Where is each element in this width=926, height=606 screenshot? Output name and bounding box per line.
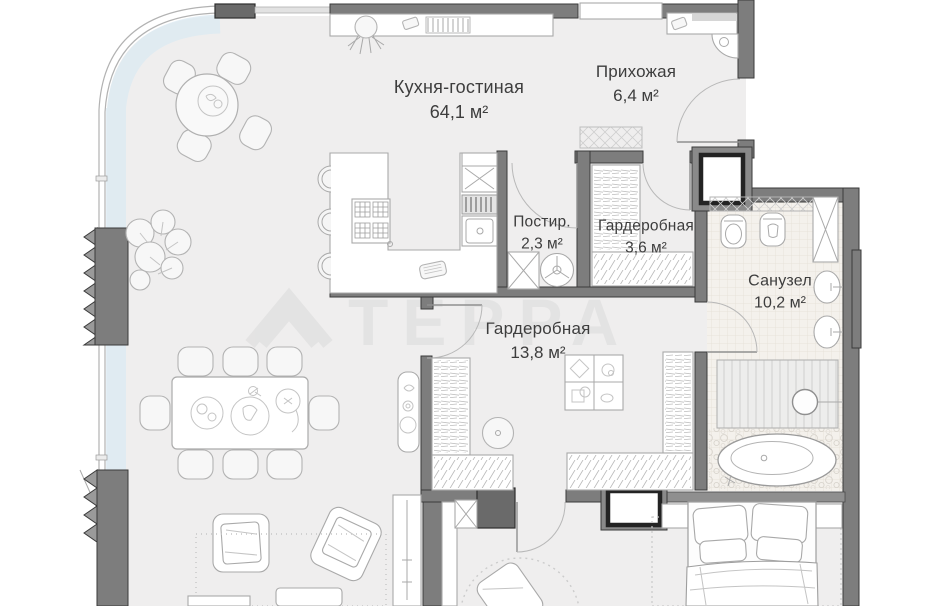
toilet-icon <box>721 215 746 248</box>
room-name: Постир. <box>513 211 571 233</box>
doormat <box>580 127 642 148</box>
nightstand <box>816 504 842 528</box>
room-label-bathroom: Санузел 10,2 м² <box>748 271 812 316</box>
washing-machine-icon <box>508 252 539 289</box>
room-area: 64,1 м² <box>394 100 524 125</box>
room-label-laundry: Постир. 2,3 м² <box>513 211 571 254</box>
facade-pier <box>84 470 128 606</box>
room-area: 2,3 м² <box>513 233 571 255</box>
room-name: Санузел <box>748 271 812 293</box>
bathtub-icon <box>718 434 836 486</box>
room-area: 13,8 м² <box>485 341 590 365</box>
nightstand <box>662 504 688 528</box>
sofa-partial <box>188 596 250 606</box>
floor-plan: ТЕРРА <box>0 0 926 606</box>
bidet-icon <box>760 213 785 246</box>
bar-stools <box>318 166 331 279</box>
ottoman-icon <box>483 418 514 449</box>
fridge-icon <box>462 153 497 192</box>
dryer-fan-icon <box>541 254 574 287</box>
duct-icon <box>813 197 838 262</box>
coffee-table-partial <box>276 588 342 606</box>
room-name: Прихожая <box>596 60 676 84</box>
oven-icon <box>462 195 497 214</box>
room-label-wardrobe-small: Гардеробная 3,6 м² <box>598 215 694 258</box>
room-name: Гардеробная <box>598 215 694 237</box>
console-table <box>667 13 737 34</box>
facade-pier <box>84 228 128 345</box>
room-label-wardrobe-large: Гардеробная 13,8 м² <box>485 317 590 365</box>
tv-cabinet <box>393 495 421 606</box>
room-label-hallway: Прихожая 6,4 м² <box>596 60 676 108</box>
room-label-kitchen-living: Кухня-гостиная 64,1 м² <box>394 75 524 125</box>
room-name: Гардеробная <box>485 317 590 341</box>
room-area: 6,4 м² <box>596 84 676 108</box>
armchair-icon <box>213 514 269 572</box>
shower-icon <box>717 360 843 428</box>
kitchen-sink-icon <box>462 216 497 246</box>
cooktop-icon <box>352 199 393 247</box>
room-area: 3,6 м² <box>598 237 694 259</box>
shaft-column <box>601 486 667 530</box>
bed-icon <box>686 502 818 606</box>
mirror-panel-icon <box>398 372 419 452</box>
room-area: 10,2 м² <box>748 293 812 315</box>
hall-closet <box>580 3 662 19</box>
books-icon <box>426 17 470 33</box>
cabinet-box-icon <box>455 500 477 528</box>
room-name: Кухня-гостиная <box>394 75 524 100</box>
